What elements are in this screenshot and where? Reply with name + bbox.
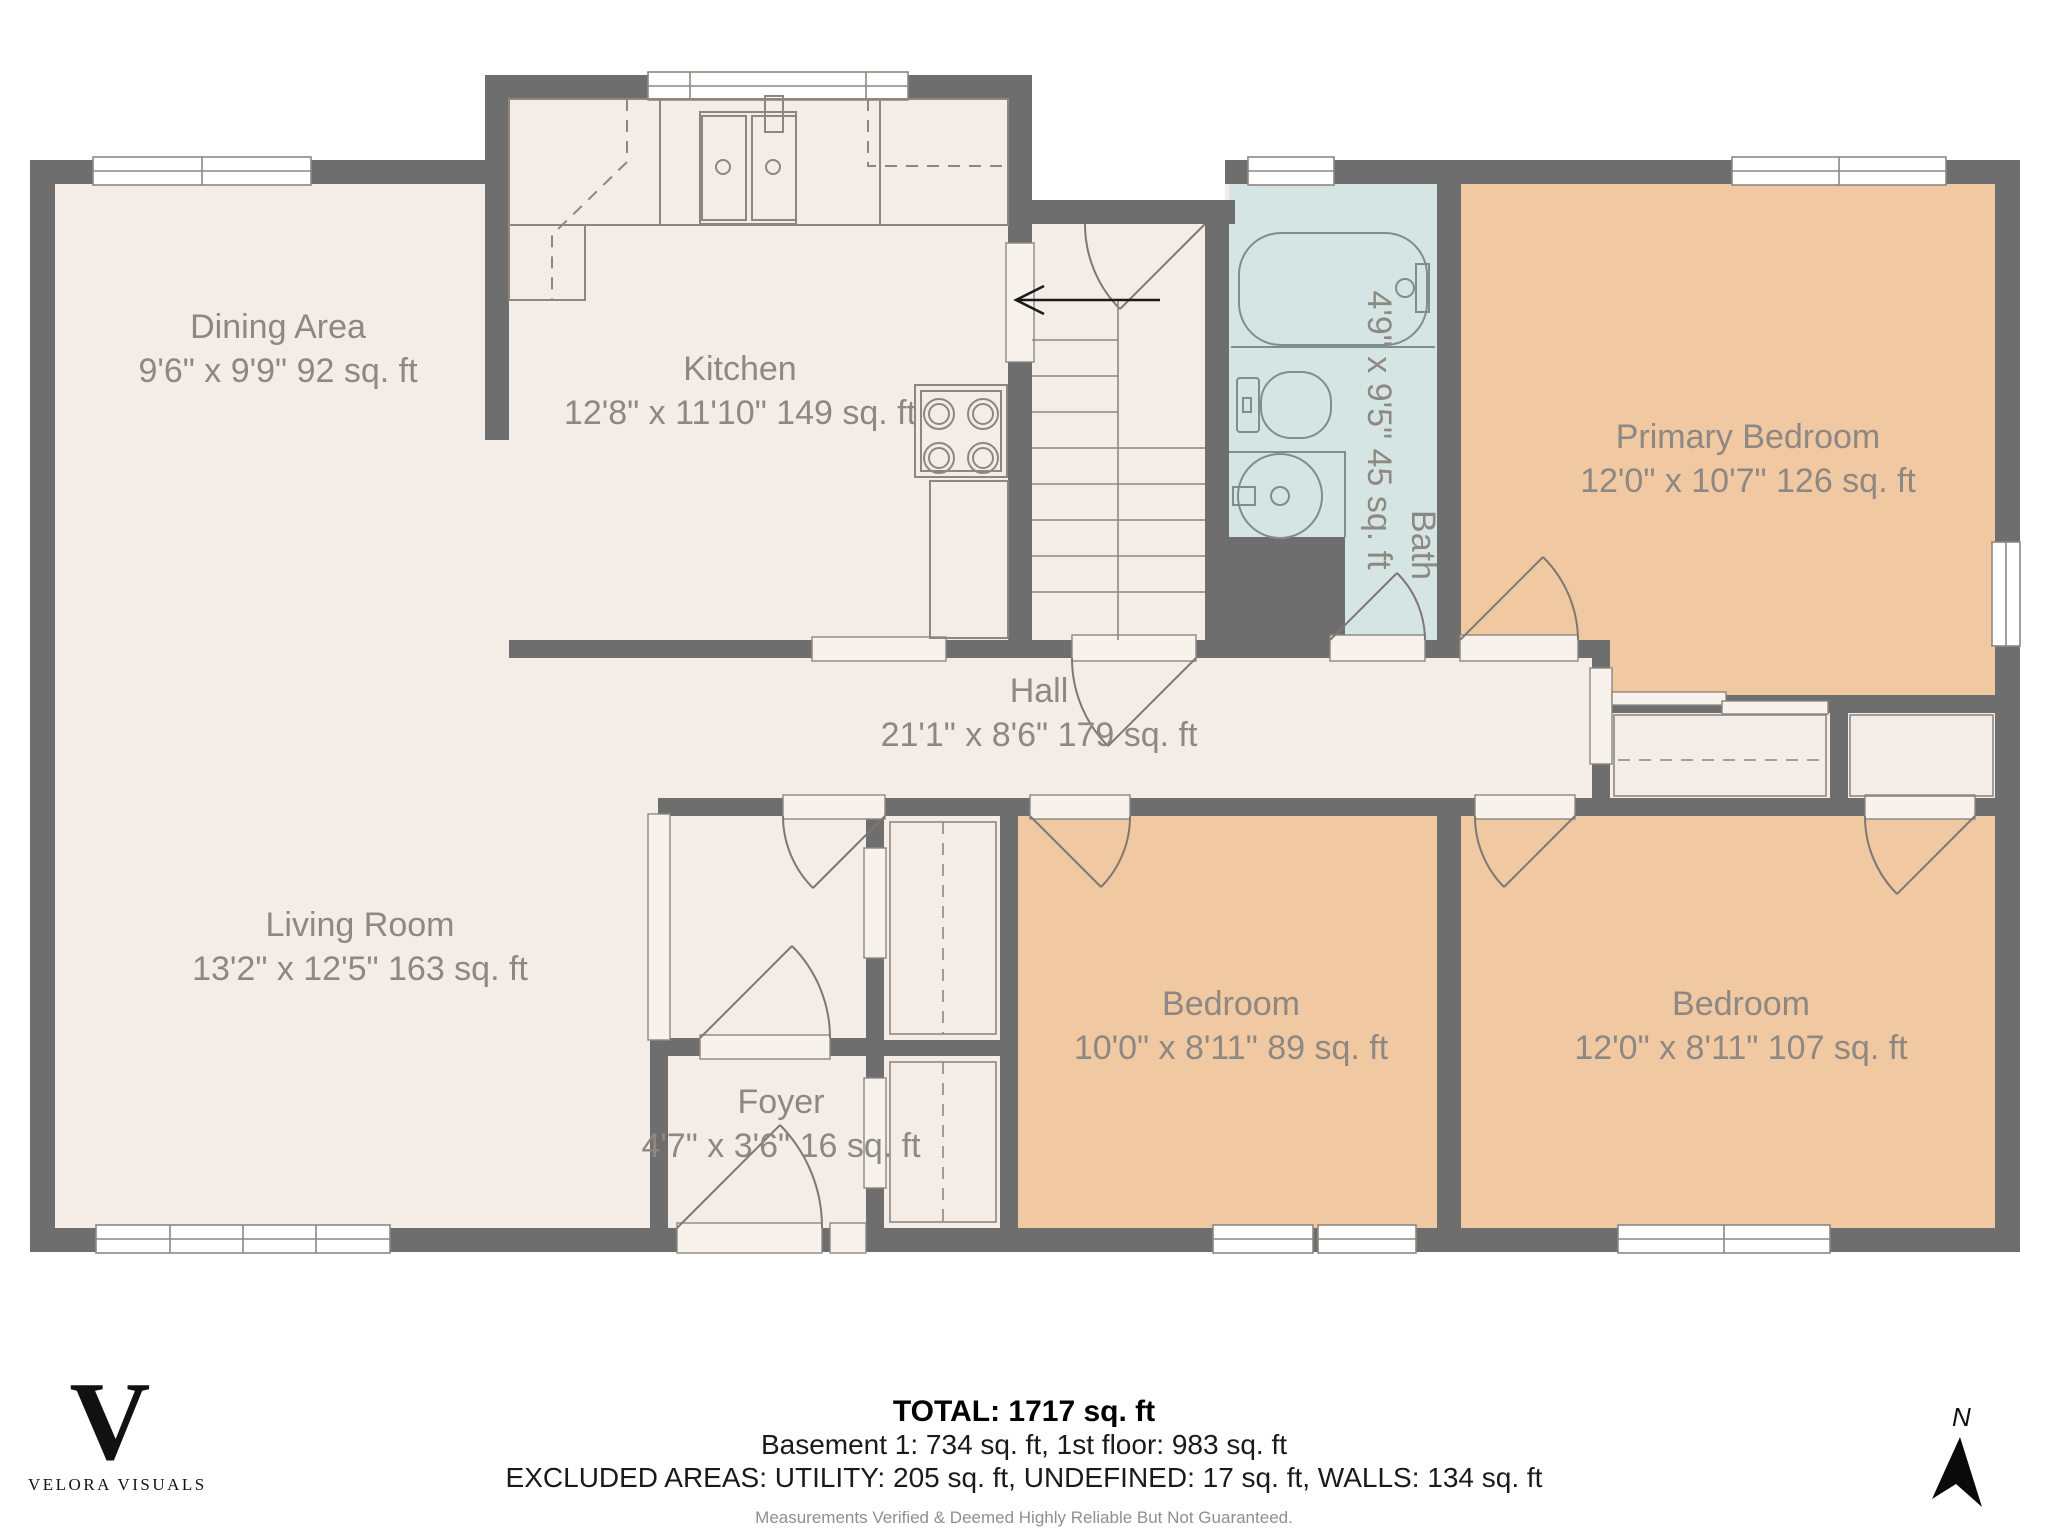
window-bath	[1248, 157, 1334, 185]
closet-opening-upper	[864, 848, 886, 958]
dining-label: Dining Area	[190, 308, 366, 346]
entry-sidelite	[830, 1223, 866, 1253]
window-right-wall	[1992, 542, 2020, 646]
footer: TOTAL: 1717 sq. ft Basement 1: 734 sq. f…	[0, 1396, 2048, 1527]
window-dining	[93, 157, 311, 185]
bedroom-right-label: Bedroom	[1672, 985, 1810, 1023]
disclaimer: Measurements Verified & Deemed Highly Re…	[0, 1509, 2048, 1527]
room-primary-bedroom-ext	[1610, 640, 1995, 695]
door-bar-bath	[1330, 635, 1425, 661]
logo: V VELORA VISUALS	[28, 1372, 192, 1495]
north-label: N	[1952, 1402, 2002, 1433]
foyer-dims: 4'7" x 3'6" 16 sq. ft	[641, 1127, 921, 1165]
bath-dims: 4'9" x 9'5" 45 sq. ft	[1360, 290, 1398, 570]
north-arrow-icon	[1922, 1433, 1992, 1523]
logo-name: VELORA VISUALS	[28, 1475, 192, 1495]
opening-kitchen-hall	[812, 637, 946, 661]
room-primary-bedroom	[1461, 184, 1995, 640]
door-bar-bedroom-right	[1475, 795, 1575, 819]
living-room-label: Living Room	[266, 906, 455, 944]
door-bar-entry	[677, 1223, 822, 1253]
bedroom-middle-label: Bedroom	[1162, 985, 1300, 1023]
excluded-areas: EXCLUDED AREAS: UTILITY: 205 sq. ft, UND…	[0, 1463, 2048, 1493]
door-bar-closet2	[1865, 795, 1975, 819]
floor-plan: Dining Area 9'6" x 9'9" 92 sq. ft Kitche…	[0, 0, 2048, 1306]
exterior-notch	[1032, 160, 1225, 200]
logo-mark: V	[28, 1372, 192, 1473]
primary-bedroom-dims: 12'0" x 10'7" 126 sq. ft	[1580, 462, 1916, 500]
closet-slider-1	[1612, 692, 1726, 705]
total-area: TOTAL: 1717 sq. ft	[0, 1396, 2048, 1428]
bedroom-middle-dims: 10'0" x 8'11" 89 sq. ft	[1074, 1029, 1389, 1067]
floor-areas-summary: Basement 1: 734 sq. ft, 1st floor: 983 s…	[0, 1430, 2048, 1460]
window-bedroom-right	[1618, 1225, 1830, 1253]
opening-living-vestibule	[648, 814, 670, 1040]
door-bar-stairs	[1072, 635, 1196, 661]
primary-bedroom-label: Primary Bedroom	[1616, 418, 1881, 456]
closet-slider-2	[1722, 701, 1828, 714]
window-living-room	[96, 1225, 390, 1253]
kitchen-label: Kitchen	[683, 350, 796, 388]
hall-label: Hall	[1010, 672, 1069, 710]
door-bar-vestibule	[783, 795, 885, 819]
kitchen-dims: 12'8" x 11'10" 149 sq. ft	[564, 394, 917, 432]
foyer-label: Foyer	[738, 1083, 825, 1121]
opening-hall-end	[1590, 668, 1612, 764]
door-bar-primary	[1460, 635, 1578, 661]
door-bar-foyer	[700, 1035, 830, 1059]
bath-label: Bath	[1404, 510, 1442, 580]
door-bar-bedroom-middle	[1030, 795, 1130, 819]
dining-dims: 9'6" x 9'9" 92 sq. ft	[138, 352, 418, 390]
window-primary-bedroom	[1732, 157, 1946, 185]
compass: N	[1922, 1402, 2002, 1528]
hall-dims: 21'1" x 8'6" 179 sq. ft	[881, 716, 1198, 754]
living-room-dims: 13'2" x 12'5" 163 sq. ft	[192, 950, 528, 988]
bedroom-right-dims: 12'0" x 8'11" 107 sq. ft	[1574, 1029, 1908, 1067]
